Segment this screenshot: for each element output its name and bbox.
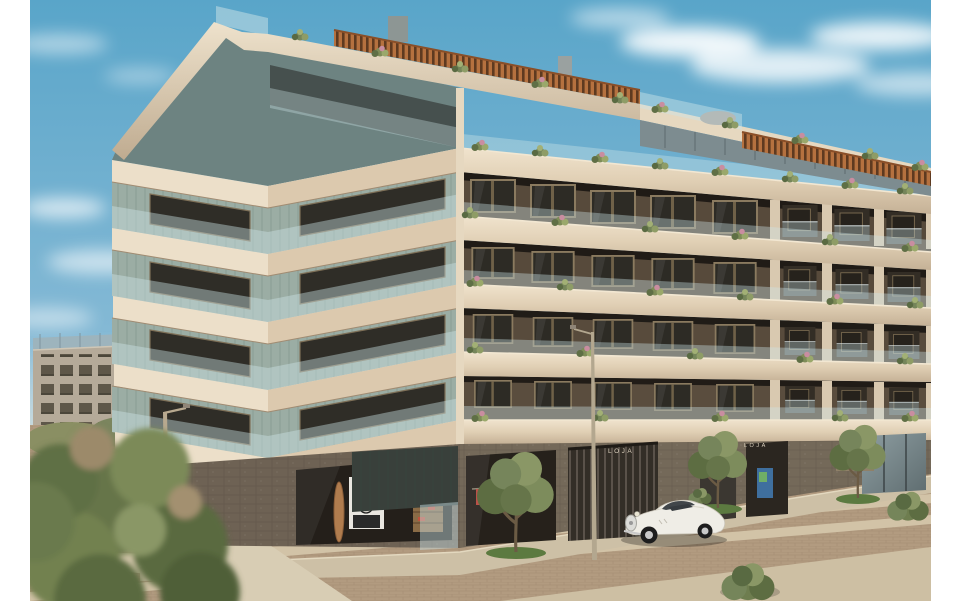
rendering-canvas: LOJA LOJA LOJA LOJA	[0, 0, 960, 601]
shop-sign: LOJA	[744, 443, 768, 449]
entrance-glass-screen	[420, 502, 458, 550]
shop-sign: LOJA	[608, 448, 634, 455]
shop-sign: LOJA	[893, 429, 916, 435]
car-headlight	[635, 512, 640, 517]
storefront-poster-window	[746, 441, 788, 517]
roof-vent	[558, 56, 572, 76]
white-margin-left	[0, 0, 30, 601]
corner-pier	[456, 88, 464, 448]
white-margin-right	[931, 0, 960, 601]
surfboard	[334, 482, 344, 542]
lamp-head	[183, 404, 190, 408]
lamp-head	[570, 325, 576, 329]
scene-svg: LOJA LOJA LOJA LOJA	[0, 0, 960, 601]
roof-chimney	[388, 16, 408, 42]
